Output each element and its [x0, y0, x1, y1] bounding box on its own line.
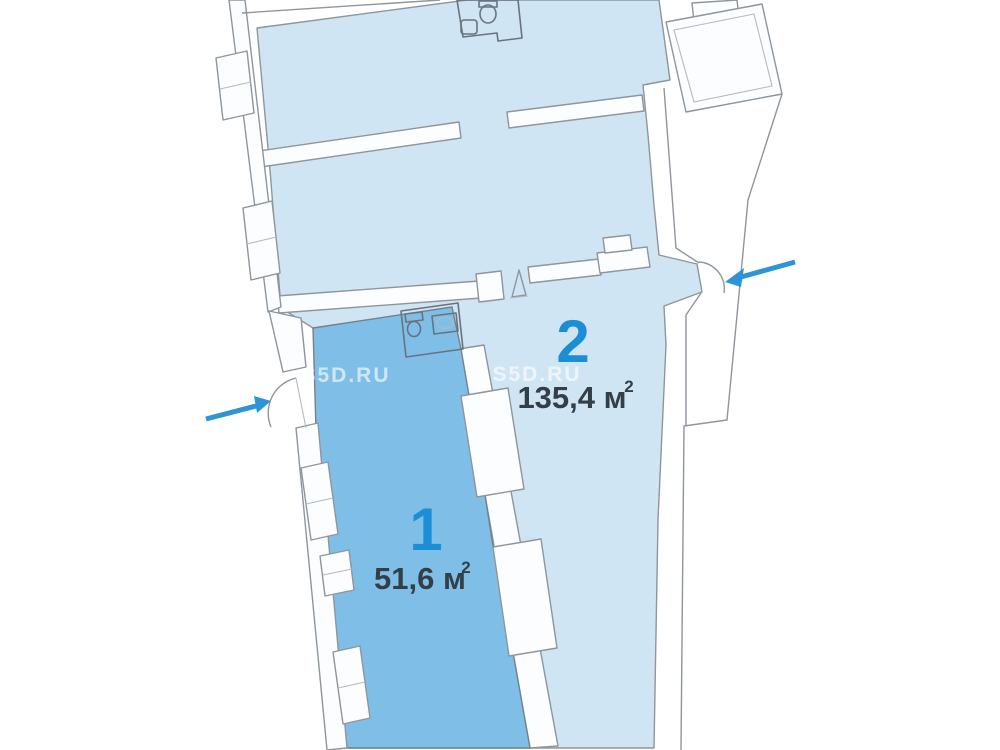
unit-1-number-label: 1 [409, 496, 442, 563]
unit-1-area-label: 51,6 м [374, 561, 466, 596]
wall-column-small [476, 271, 504, 302]
unit-2-number-label: 2 [556, 308, 589, 375]
floor-plan-svg: S5D.RU S5D.RU 2 135,4 м 2 1 51,6 м 2 [0, 0, 1000, 750]
window-1 [216, 51, 254, 120]
unit-1-area-superscript: 2 [461, 558, 470, 577]
watermark-text-1: S5D.RU [301, 364, 390, 387]
unit-2-area-label: 135,4 м [517, 380, 626, 415]
unit-2-area-superscript: 2 [624, 377, 633, 396]
window-4 [320, 550, 354, 596]
floor-plan-page: S5D.RU S5D.RU 2 135,4 м 2 1 51,6 м 2 [0, 0, 1000, 750]
vestibule-box-small [603, 235, 632, 253]
